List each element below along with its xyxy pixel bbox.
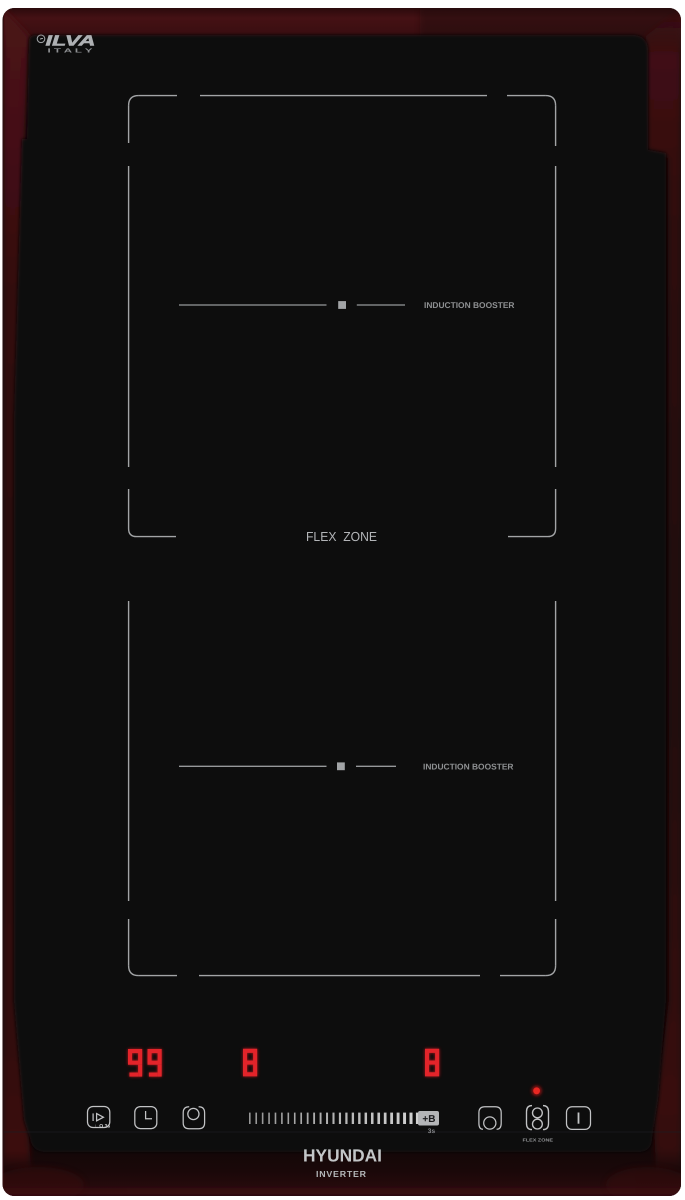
svg-text:INDUCTION BOOSTER: INDUCTION BOOSTER	[423, 762, 514, 772]
svg-text:∟O 3s: ∟O 3s	[94, 1124, 110, 1130]
svg-text:INDUCTION BOOSTER: INDUCTION BOOSTER	[424, 300, 515, 310]
svg-text:FLEX ZONE: FLEX ZONE	[523, 1138, 554, 1143]
svg-text:I T A L Y: I T A L Y	[48, 47, 93, 54]
svg-text:3s: 3s	[428, 1128, 436, 1135]
svg-text:+B: +B	[422, 1114, 435, 1125]
svg-text:ILVA: ILVA	[46, 33, 96, 49]
svg-text:FLEX ZONE: FLEX ZONE	[306, 529, 377, 544]
svg-text:INVERTER: INVERTER	[316, 1169, 367, 1179]
svg-text:HYUNDAI: HYUNDAI	[303, 1145, 382, 1165]
